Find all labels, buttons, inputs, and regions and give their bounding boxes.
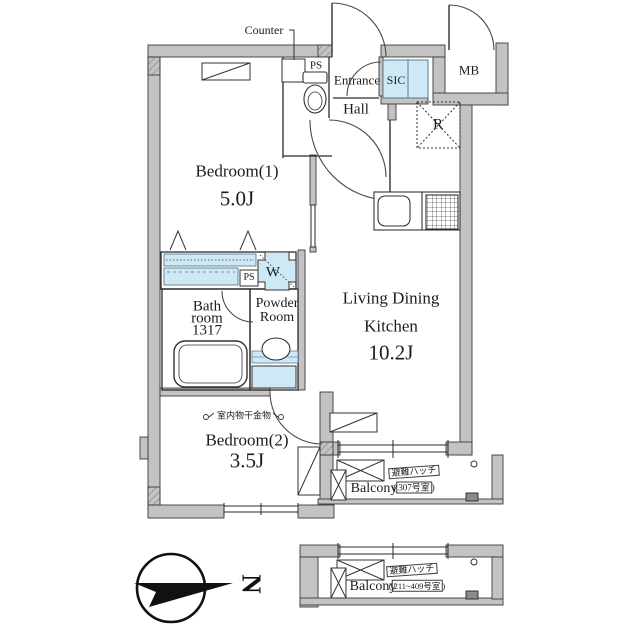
ldk-size: 10.2J <box>369 343 414 364</box>
floor-plan-drawing <box>0 0 640 639</box>
drain-icon-lower <box>466 591 478 599</box>
counter-label: Counter <box>245 24 284 36</box>
bedroom2-size: 3.5J <box>230 451 264 472</box>
room-number: 307号室 <box>396 482 432 494</box>
bedroom1-size: 5.0J <box>220 189 254 210</box>
sic-label: SIC <box>387 74 406 86</box>
balcony-upper-label: Balcony <box>351 482 398 496</box>
mb-label: MB <box>459 64 479 77</box>
fridge-label: R <box>433 118 443 133</box>
hall-label: Hall <box>343 103 369 118</box>
compass-north-label: N <box>238 574 265 594</box>
bedroom2-closet-icon <box>298 447 320 495</box>
floor-plan: Counter PS Entrance SIC MB Hall R Bedroo… <box>0 0 640 639</box>
ldk-name-line1: Living Dining <box>343 290 440 307</box>
bedroom1-shelf-icon <box>202 63 250 80</box>
kitchen-sink-icon <box>378 196 410 226</box>
bath-label-3: 1317 <box>192 324 222 339</box>
ldk-name-line2: Kitchen <box>364 318 418 335</box>
entrance-label: Entrance <box>334 74 380 87</box>
kitchen-counter <box>374 192 460 230</box>
bathtub-icon <box>174 341 247 387</box>
ps-top-label: PS <box>310 61 322 72</box>
stove-icon <box>426 195 458 229</box>
bedroom1-name: Bedroom(1) <box>195 163 278 180</box>
paren-close: ) <box>432 483 435 493</box>
room-number: 211~409号室 <box>392 580 443 592</box>
drying-label: 室内物干金物 <box>217 412 271 421</box>
powder-label-2: Room <box>260 311 294 325</box>
paren-close: ) <box>442 581 445 591</box>
toilet-icon <box>303 72 327 113</box>
washer-label: W <box>266 266 280 281</box>
bedroom2-name: Bedroom(2) <box>205 432 288 449</box>
ps-mid-label: PS <box>243 273 254 283</box>
vanity-cabinet <box>252 366 296 388</box>
hanger-pipe-icons <box>170 231 256 250</box>
evac-hatch-upper-room: (307号室) <box>393 484 435 493</box>
drain-icon <box>466 493 478 501</box>
washbasin-icon <box>252 338 298 388</box>
compass-icon <box>134 554 233 622</box>
living-board-icon <box>330 413 377 432</box>
evac-hatch-lower-room: (211~409号室) <box>389 582 445 591</box>
powder-label-1: Powder <box>256 297 299 311</box>
toilet-counter <box>282 59 305 82</box>
